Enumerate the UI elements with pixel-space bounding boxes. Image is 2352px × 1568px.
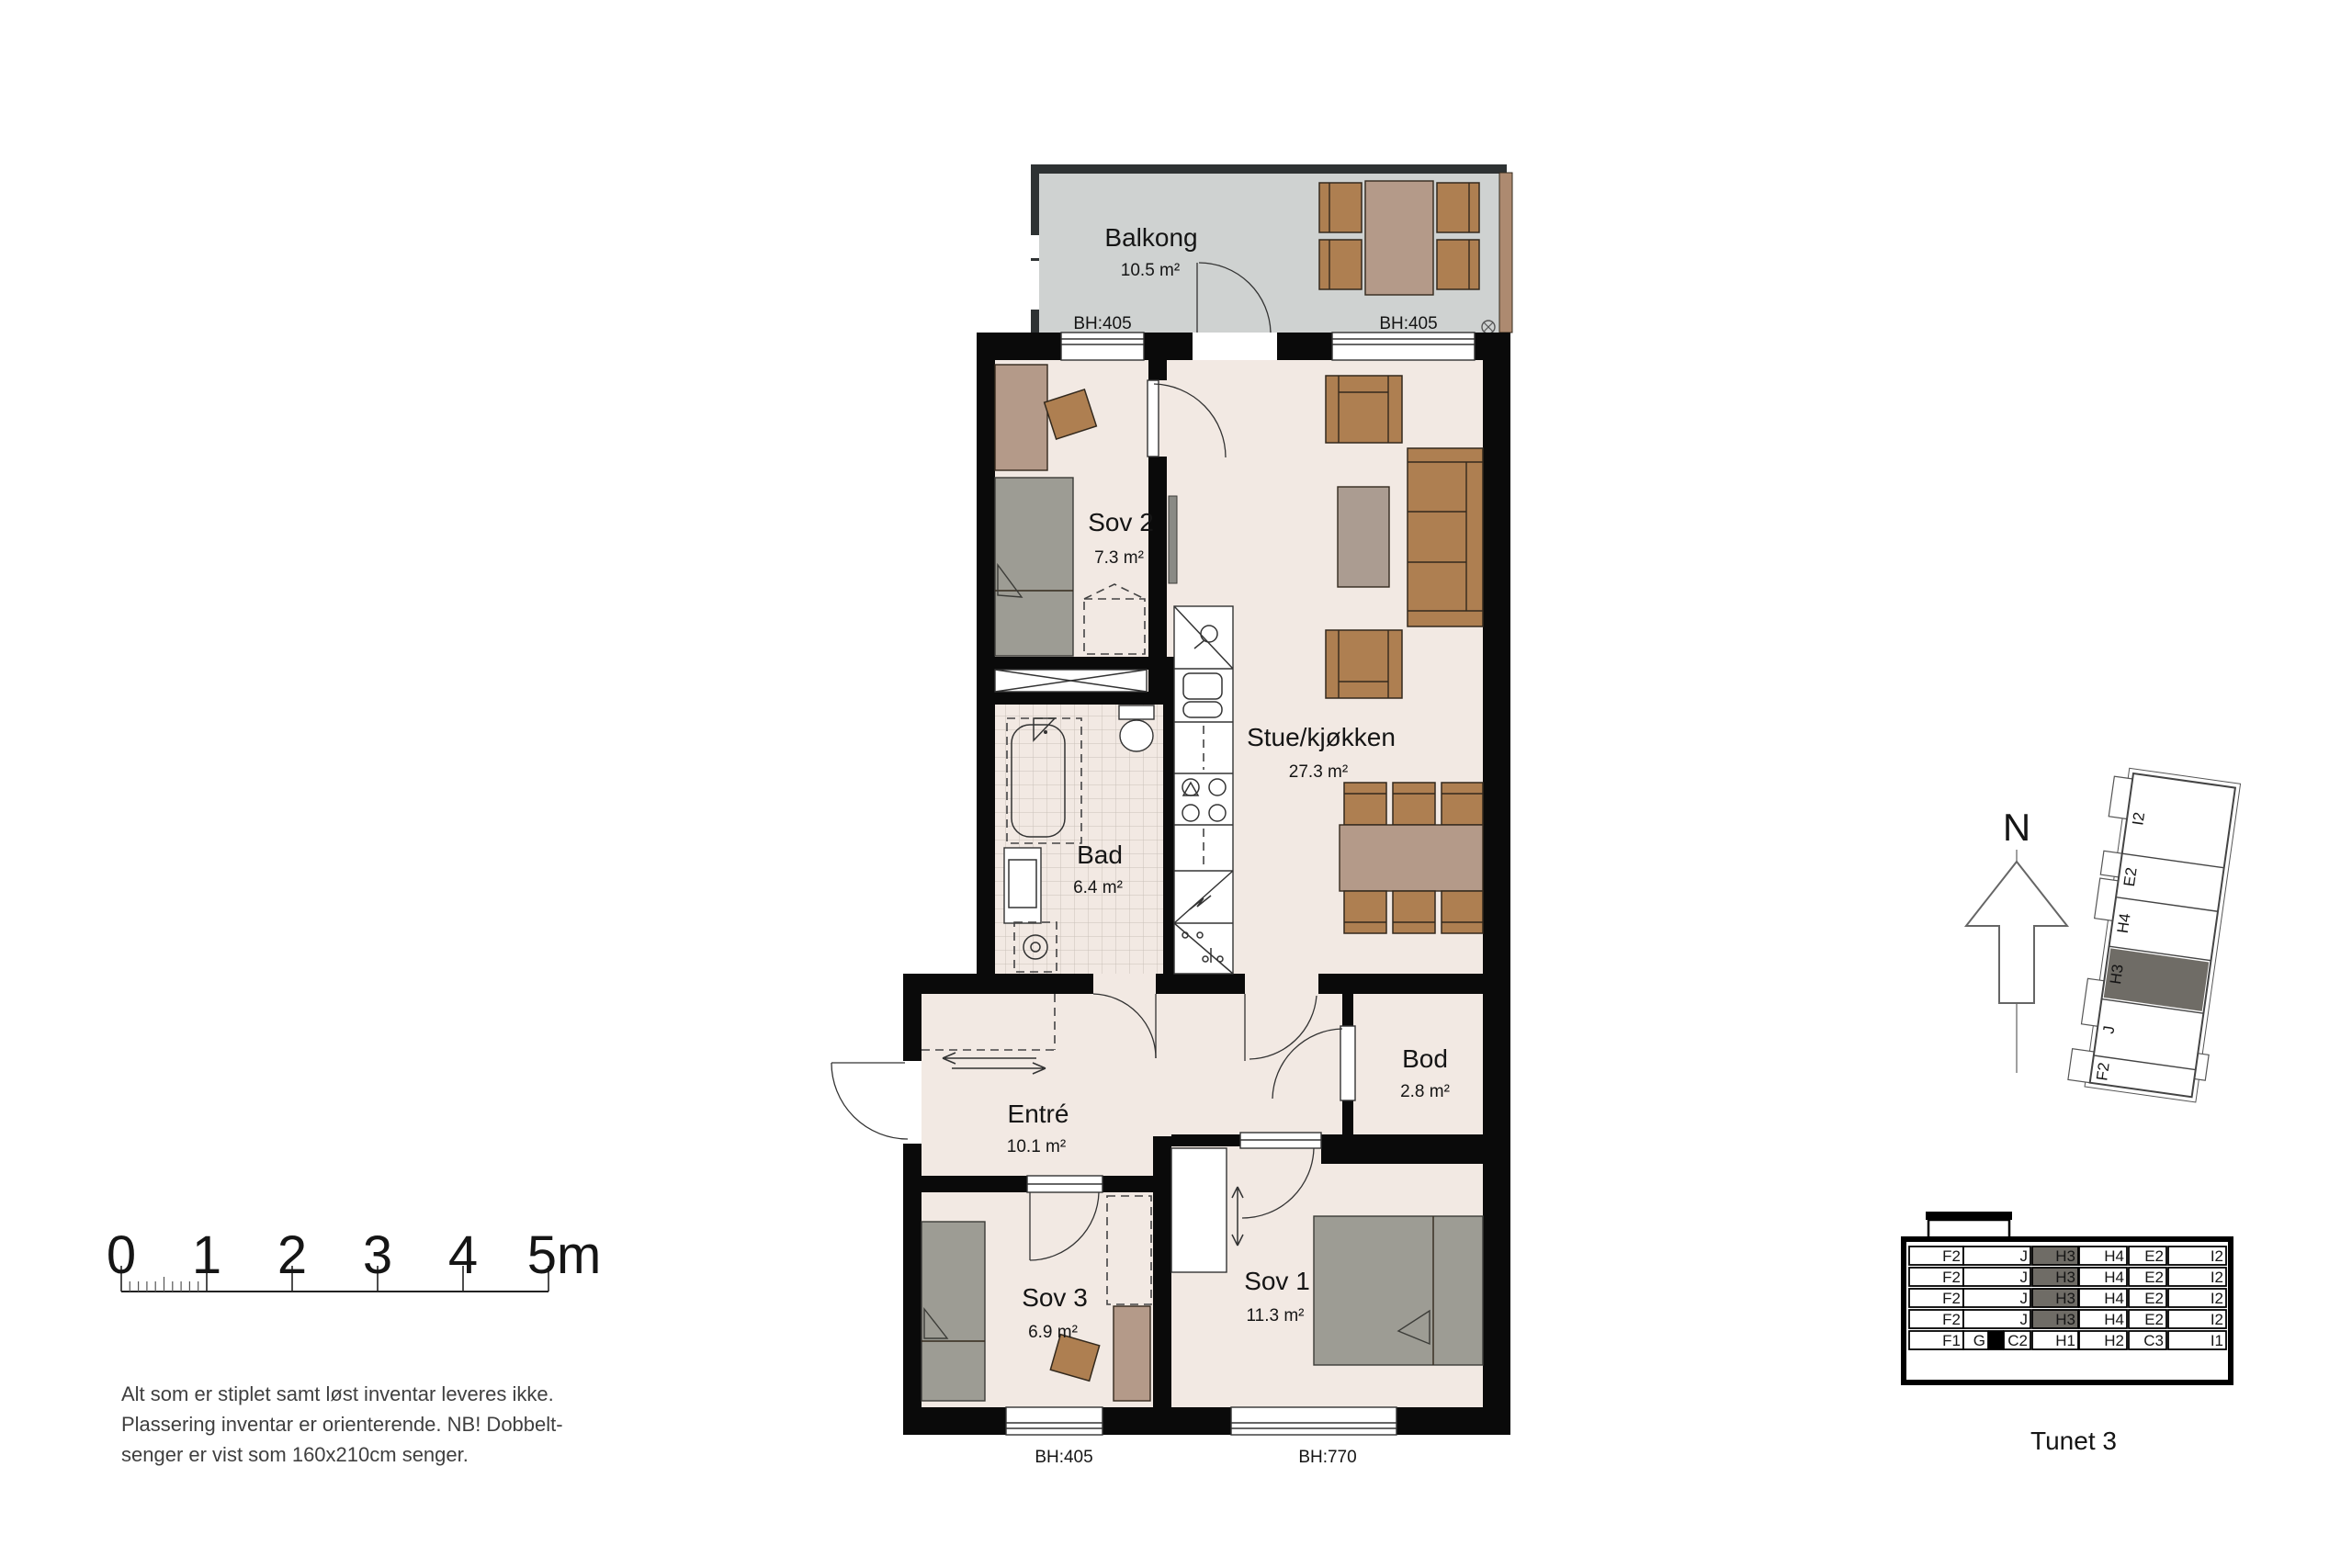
scale-label-3: 3 <box>363 1225 392 1285</box>
room-label-sov2: Sov 2 <box>1088 508 1154 536</box>
site-unit-label: I2 <box>2129 811 2148 827</box>
north-arrow-shape <box>1966 862 2067 1003</box>
elevation-cell-label: E2 <box>2144 1269 2164 1286</box>
balcony-chair <box>1437 183 1479 232</box>
balcony-left-window-gap <box>1031 235 1039 258</box>
sofa <box>1408 448 1483 626</box>
room-label-bad: Bad <box>1077 840 1123 869</box>
room-area-balkong: 10.5 m² <box>1121 261 1180 280</box>
scale-label-1: 1 <box>192 1225 221 1285</box>
armchair <box>1326 630 1402 698</box>
room-area-bad: 6.4 m² <box>1073 878 1123 897</box>
room-area-bod: 2.8 m² <box>1400 1082 1450 1101</box>
elevation-title: Tunet 3 <box>2030 1427 2117 1455</box>
scale-label-5m: 5m <box>527 1225 602 1285</box>
site-unit-label: H3 <box>2107 964 2127 986</box>
site-building-outline <box>2090 773 2235 1097</box>
scale-label-0: 0 <box>107 1225 136 1285</box>
elevation-cell-label: I2 <box>2211 1247 2223 1265</box>
bh-label: BH:405 <box>1379 314 1437 333</box>
elevation-cell-label: F2 <box>1942 1269 1961 1286</box>
elevation-cell-label: H2 <box>2104 1332 2124 1349</box>
elevation-cell-label: I2 <box>2211 1311 2223 1328</box>
elevation-cell-label: H4 <box>2104 1311 2124 1328</box>
elevation-cell-label: J <box>2020 1269 2029 1286</box>
balcony-chair <box>1319 240 1362 289</box>
elevation-cell-label: E2 <box>2144 1290 2164 1307</box>
elevation-cell-label: F2 <box>1942 1290 1961 1307</box>
bh-label: BH:405 <box>1073 314 1131 333</box>
elevation-cell-label: H3 <box>2055 1311 2075 1328</box>
elevation-cell-label: I2 <box>2211 1290 2223 1307</box>
elevation-cell-label: C3 <box>2143 1332 2164 1349</box>
elevation-tower-roof <box>1926 1212 2012 1220</box>
elevation-cell-label: E2 <box>2144 1247 2164 1265</box>
window-sov2 <box>1061 333 1144 360</box>
dining-table <box>1340 825 1483 891</box>
window-sov3 <box>1006 1407 1102 1435</box>
bh-label: BH:405 <box>1035 1448 1092 1467</box>
elevation-cell-label: F1 <box>1942 1332 1961 1349</box>
room-area-entre: 10.1 m² <box>1007 1137 1066 1156</box>
elevation-cell-label: H4 <box>2104 1290 2124 1307</box>
window-sov1 <box>1231 1407 1396 1435</box>
tv <box>1169 496 1177 583</box>
bh-label: BH:770 <box>1298 1448 1356 1467</box>
elevation-cell-label: J <box>2020 1247 2029 1265</box>
armchair <box>1326 376 1402 443</box>
elevation-cell-label: F2 <box>1942 1247 1961 1265</box>
elevation-cell-label: E2 <box>2144 1311 2164 1328</box>
room-area-stue: 27.3 m² <box>1289 762 1348 782</box>
entrance-door <box>831 1061 922 1144</box>
kitchen-counter <box>1174 606 1233 974</box>
elevation-cell-label: H4 <box>2104 1269 2124 1286</box>
elevation-cell-label: F2 <box>1942 1311 1961 1328</box>
elevation-cell-label: I1 <box>2211 1332 2223 1349</box>
north-label: N <box>2003 806 2030 849</box>
dining-set <box>1340 783 1483 933</box>
elevation-cell-label: H1 <box>2055 1332 2075 1349</box>
room-label-balkong: Balkong <box>1104 223 1197 252</box>
elevation-cell-label: H3 <box>2055 1290 2075 1307</box>
elevation-cell-label: H3 <box>2055 1269 2075 1286</box>
desk <box>995 365 1047 470</box>
room-area-sov2: 7.3 m² <box>1094 548 1144 568</box>
balcony-chair <box>1319 183 1362 232</box>
elevation-cell-label: H4 <box>2104 1247 2124 1265</box>
site-unit-label: H4 <box>2114 912 2134 934</box>
bed-double <box>1314 1216 1483 1365</box>
floorplan-page: Balkong 10.5 m² BH:405 BH:405 <box>0 0 2352 1568</box>
elevation-cell-label: J <box>2020 1290 2029 1307</box>
toilet <box>1119 705 1154 751</box>
window-stue <box>1332 333 1475 360</box>
building-elevation: F2 J H3 H4 E2 I2 F2 J H3 H4 E2 I2 F2 J H… <box>1904 1212 2231 1455</box>
elevation-cell-label: H3 <box>2055 1247 2075 1265</box>
room-label-entre: Entré <box>1008 1100 1069 1128</box>
balcony-right-wall <box>1499 173 1512 333</box>
room-label-sov1: Sov 1 <box>1244 1267 1310 1295</box>
balcony-top-wall <box>1031 164 1507 174</box>
elevation-cell-label: J <box>2020 1311 2029 1328</box>
scale-label-4: 4 <box>448 1225 478 1285</box>
site-plan: I2 E2 H4 H3 J F2 <box>2067 766 2246 1103</box>
room-label-bod: Bod <box>1402 1044 1448 1073</box>
room-area-sov3: 6.9 m² <box>1028 1323 1078 1342</box>
note-line: Alt som er stiplet samt løst inventar le… <box>121 1382 554 1405</box>
north-arrow: N <box>1966 806 2067 1073</box>
balcony-table <box>1365 181 1433 295</box>
bed-single <box>995 478 1073 656</box>
bed-single <box>922 1222 985 1401</box>
note-line: senger er vist som 160x210cm senger. <box>121 1443 469 1466</box>
wardrobe <box>1171 1148 1227 1272</box>
site-unit-label: F2 <box>2093 1061 2113 1081</box>
elevation-cell-label: I2 <box>2211 1269 2223 1286</box>
bathroom: Bad 6.4 m² <box>995 705 1163 974</box>
scale-minor-ticks <box>130 1277 198 1292</box>
note-line: Plassering inventar er orienterende. NB!… <box>121 1413 563 1436</box>
duct-shaft <box>995 670 1147 692</box>
disclaimer-note: Alt som er stiplet samt løst inventar le… <box>121 1382 563 1466</box>
site-unit-label: E2 <box>2120 866 2141 887</box>
room-label-sov3: Sov 3 <box>1022 1283 1088 1312</box>
balcony-chair <box>1437 240 1479 289</box>
room-label-stue: Stue/kjøkken <box>1247 723 1396 751</box>
bathroom-sink <box>1004 848 1041 923</box>
balcony-left-window-gap <box>1031 261 1039 310</box>
scale-label-2: 2 <box>277 1225 307 1285</box>
scale-bar: 0 1 2 3 4 5m <box>107 1225 601 1292</box>
floorplan-canvas: Balkong 10.5 m² BH:405 BH:405 <box>0 0 2352 1568</box>
room-area-sov1: 11.3 m² <box>1246 1306 1304 1325</box>
dresser <box>1114 1306 1150 1401</box>
coffee-table <box>1338 487 1389 587</box>
elevation-cell-label: G <box>1973 1332 1985 1349</box>
elevation-cell-label: C2 <box>2007 1332 2028 1349</box>
